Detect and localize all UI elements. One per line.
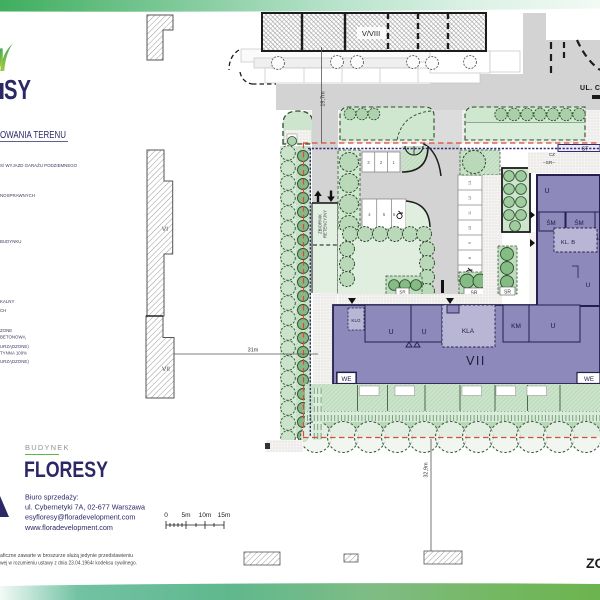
- svg-text:ST: ST: [581, 147, 589, 153]
- svg-text:U: U: [586, 282, 591, 289]
- svg-text:–SR–: –SR–: [543, 160, 555, 166]
- svg-text:KLG: KLG: [351, 318, 361, 323]
- svg-text:CZ: CZ: [549, 152, 555, 157]
- svg-text:aficzne zawarte w broszurze sł: aficzne zawarte w broszurze służą jedyni…: [0, 553, 133, 559]
- svg-text:RETENCYJNY: RETENCYJNY: [323, 210, 328, 238]
- svg-text:URZĄDZONE): URZĄDZONE): [0, 359, 29, 364]
- svg-text:VII: VII: [162, 366, 170, 373]
- svg-text:BUDYNKU: BUDYNKU: [0, 239, 21, 244]
- svg-text:10m: 10m: [199, 512, 212, 519]
- svg-text:BUDYNEK: BUDYNEK: [25, 443, 70, 452]
- svg-text:19,7m: 19,7m: [321, 91, 327, 107]
- svg-text:NOSPRAWNYCH: NOSPRAWNYCH: [0, 193, 35, 198]
- svg-text:FLORESY: FLORESY: [24, 457, 108, 482]
- svg-text:BETONOWĄ: BETONOWĄ: [0, 335, 26, 340]
- svg-text:13: 13: [468, 181, 472, 185]
- svg-text:15m: 15m: [218, 512, 231, 519]
- svg-text:8: 8: [468, 257, 472, 259]
- svg-text:KLA: KLA: [462, 328, 475, 335]
- svg-text:KL. B: KL. B: [561, 240, 575, 246]
- svg-text:Biuro sprzedaży:: Biuro sprzedaży:: [25, 493, 79, 502]
- svg-text:10: 10: [468, 226, 472, 230]
- svg-text:TYNNA 100%: TYNNA 100%: [0, 351, 27, 356]
- svg-text:esyfloresy@floradevelopment.co: esyfloresy@floradevelopment.com: [25, 513, 135, 522]
- svg-text:0: 0: [164, 512, 168, 519]
- svg-text:SY: SY: [4, 74, 31, 105]
- svg-text:OWANIA TERENU: OWANIA TERENU: [0, 130, 66, 141]
- svg-text:S/ WYJAZD GARAŻU PODZIEMNEGO: S/ WYJAZD GARAŻU PODZIEMNEGO: [0, 163, 78, 168]
- svg-text:UL. CY: UL. CY: [580, 85, 600, 92]
- svg-text:CH: CH: [0, 308, 6, 313]
- svg-text:ŚM: ŚM: [574, 219, 583, 227]
- svg-text:U: U: [421, 329, 426, 336]
- svg-text:VII: VII: [466, 354, 486, 368]
- svg-text:SR: SR: [504, 290, 511, 296]
- svg-text:WE: WE: [342, 376, 352, 383]
- svg-text:ŚM: ŚM: [546, 219, 555, 227]
- svg-text:wej w rozumieniu ustawy z dnia: wej w rozumieniu ustawy z dnia 23.04.196…: [0, 561, 137, 567]
- svg-text:12: 12: [468, 196, 472, 200]
- svg-text:WE: WE: [584, 376, 594, 383]
- svg-text:URZĄDZONE): URZĄDZONE): [0, 344, 29, 349]
- svg-text:KM: KM: [511, 323, 521, 330]
- svg-text:5m: 5m: [181, 512, 190, 519]
- svg-text:32,9m: 32,9m: [424, 462, 430, 478]
- svg-text:U: U: [544, 188, 549, 195]
- svg-text:V/VIII: V/VIII: [362, 29, 380, 38]
- svg-text:31m: 31m: [248, 348, 259, 354]
- svg-text:U: U: [388, 329, 393, 336]
- svg-text:ZONE: ZONE: [0, 328, 12, 333]
- svg-text:ul. Cybernetyki 7A, 02-677 War: ul. Cybernetyki 7A, 02-677 Warszawa: [25, 503, 145, 512]
- svg-text:SR: SR: [399, 290, 406, 295]
- svg-text:www.floradevelopment.com: www.floradevelopment.com: [24, 523, 113, 532]
- svg-text:9: 9: [468, 242, 472, 244]
- svg-text:ZO: ZO: [586, 555, 600, 571]
- svg-text:U: U: [550, 323, 555, 330]
- svg-text:KALNY: KALNY: [0, 299, 14, 304]
- svg-text:11: 11: [468, 211, 472, 215]
- svg-text:VI: VI: [162, 226, 168, 233]
